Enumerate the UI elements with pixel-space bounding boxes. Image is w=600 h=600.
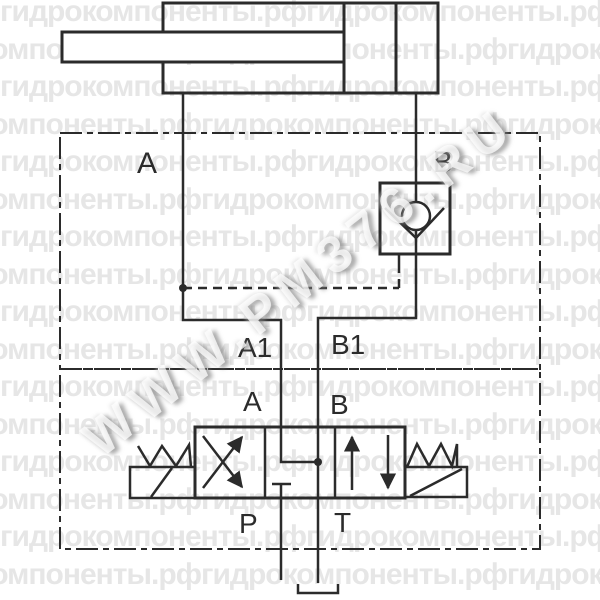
spring-left <box>138 445 191 467</box>
hydraulic-schematic-page: гидрокомпоненты.рфгидрокомпоненты.рфгидр… <box>0 0 600 600</box>
valve-position-center <box>272 427 322 498</box>
line-a <box>183 93 281 427</box>
label-cylinder-port-a: А <box>137 147 157 180</box>
cylinder-rod <box>62 32 344 62</box>
hydraulic-cylinder <box>62 3 438 93</box>
label-valve-port-a: А <box>243 386 262 417</box>
check-valve-ball <box>402 202 430 230</box>
solenoid-left-slash <box>151 468 172 497</box>
valve-position-crossed <box>203 436 242 488</box>
spring-right <box>407 444 457 467</box>
tank-symbol <box>298 584 338 593</box>
check-valve-block-boundary <box>60 133 540 369</box>
label-cylinder-port-b: В <box>433 146 453 179</box>
label-valve-port-t: Т <box>334 507 351 538</box>
pilot-check-valve <box>380 183 450 254</box>
valve-position-parallel <box>352 435 388 490</box>
label-valve-port-b: В <box>330 389 349 420</box>
hydraulic-circuit-diagram: А В А1 В1 А В Р Т <box>0 0 600 600</box>
pilot-line <box>179 254 399 292</box>
solenoid-right-slash <box>410 469 462 496</box>
label-port-b1: В1 <box>331 329 365 360</box>
directional-valve-block-boundary <box>60 369 540 549</box>
directional-valve <box>130 427 467 498</box>
label-valve-port-p: Р <box>239 508 258 539</box>
label-port-a1: А1 <box>238 332 272 363</box>
